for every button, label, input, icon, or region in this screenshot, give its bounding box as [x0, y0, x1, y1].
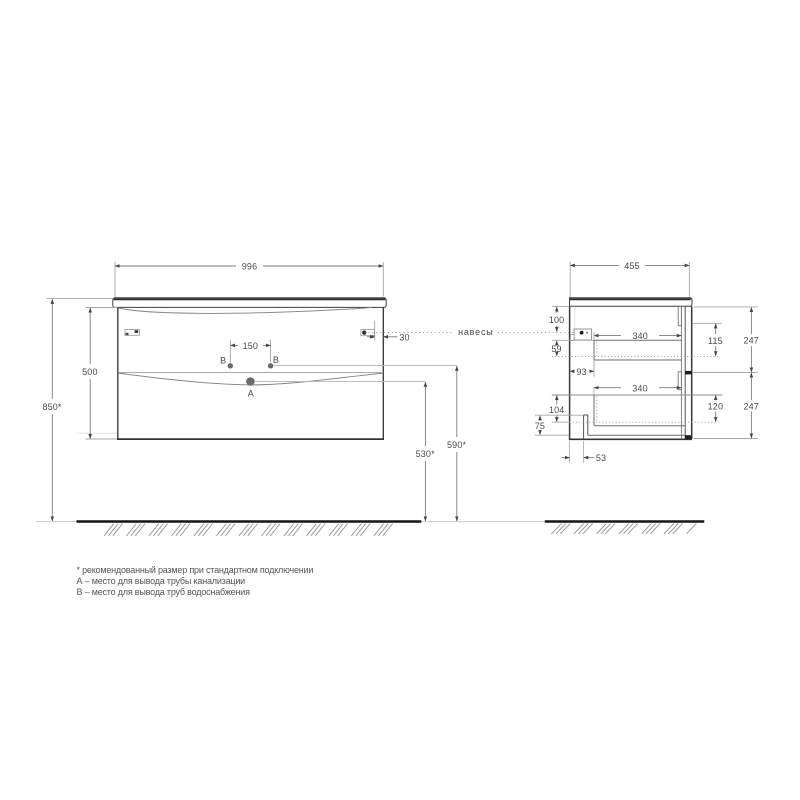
svg-text:30: 30 [399, 332, 409, 342]
svg-text:100: 100 [549, 315, 564, 325]
svg-text:340: 340 [632, 331, 647, 341]
svg-text:104: 104 [549, 405, 564, 415]
svg-text:850*: 850* [42, 402, 61, 412]
svg-text:150: 150 [243, 341, 258, 351]
svg-text:А – место для вывода трубы кан: А – место для вывода трубы канализации [77, 576, 246, 586]
svg-text:500: 500 [82, 367, 97, 377]
svg-text:* рекомендованный размер при с: * рекомендованный размер при стандартном… [77, 565, 314, 575]
svg-text:530*: 530* [416, 449, 435, 459]
svg-text:455: 455 [624, 261, 639, 271]
svg-text:B: B [220, 355, 226, 365]
svg-text:навесы: навесы [458, 327, 493, 337]
svg-text:247: 247 [743, 401, 758, 411]
svg-text:75: 75 [535, 421, 545, 431]
svg-text:93: 93 [576, 367, 586, 377]
svg-text:996: 996 [242, 262, 257, 272]
svg-text:53: 53 [596, 453, 606, 463]
svg-text:120: 120 [708, 401, 723, 411]
svg-text:247: 247 [743, 335, 758, 345]
svg-text:B: B [273, 355, 279, 365]
svg-text:115: 115 [708, 336, 723, 346]
svg-text:340: 340 [632, 383, 647, 393]
svg-text:59: 59 [551, 344, 561, 354]
svg-text:A: A [248, 388, 254, 398]
svg-text:В – место для вывода труб водо: В – место для вывода труб водоснабжения [77, 587, 251, 597]
svg-text:590*: 590* [447, 440, 466, 450]
